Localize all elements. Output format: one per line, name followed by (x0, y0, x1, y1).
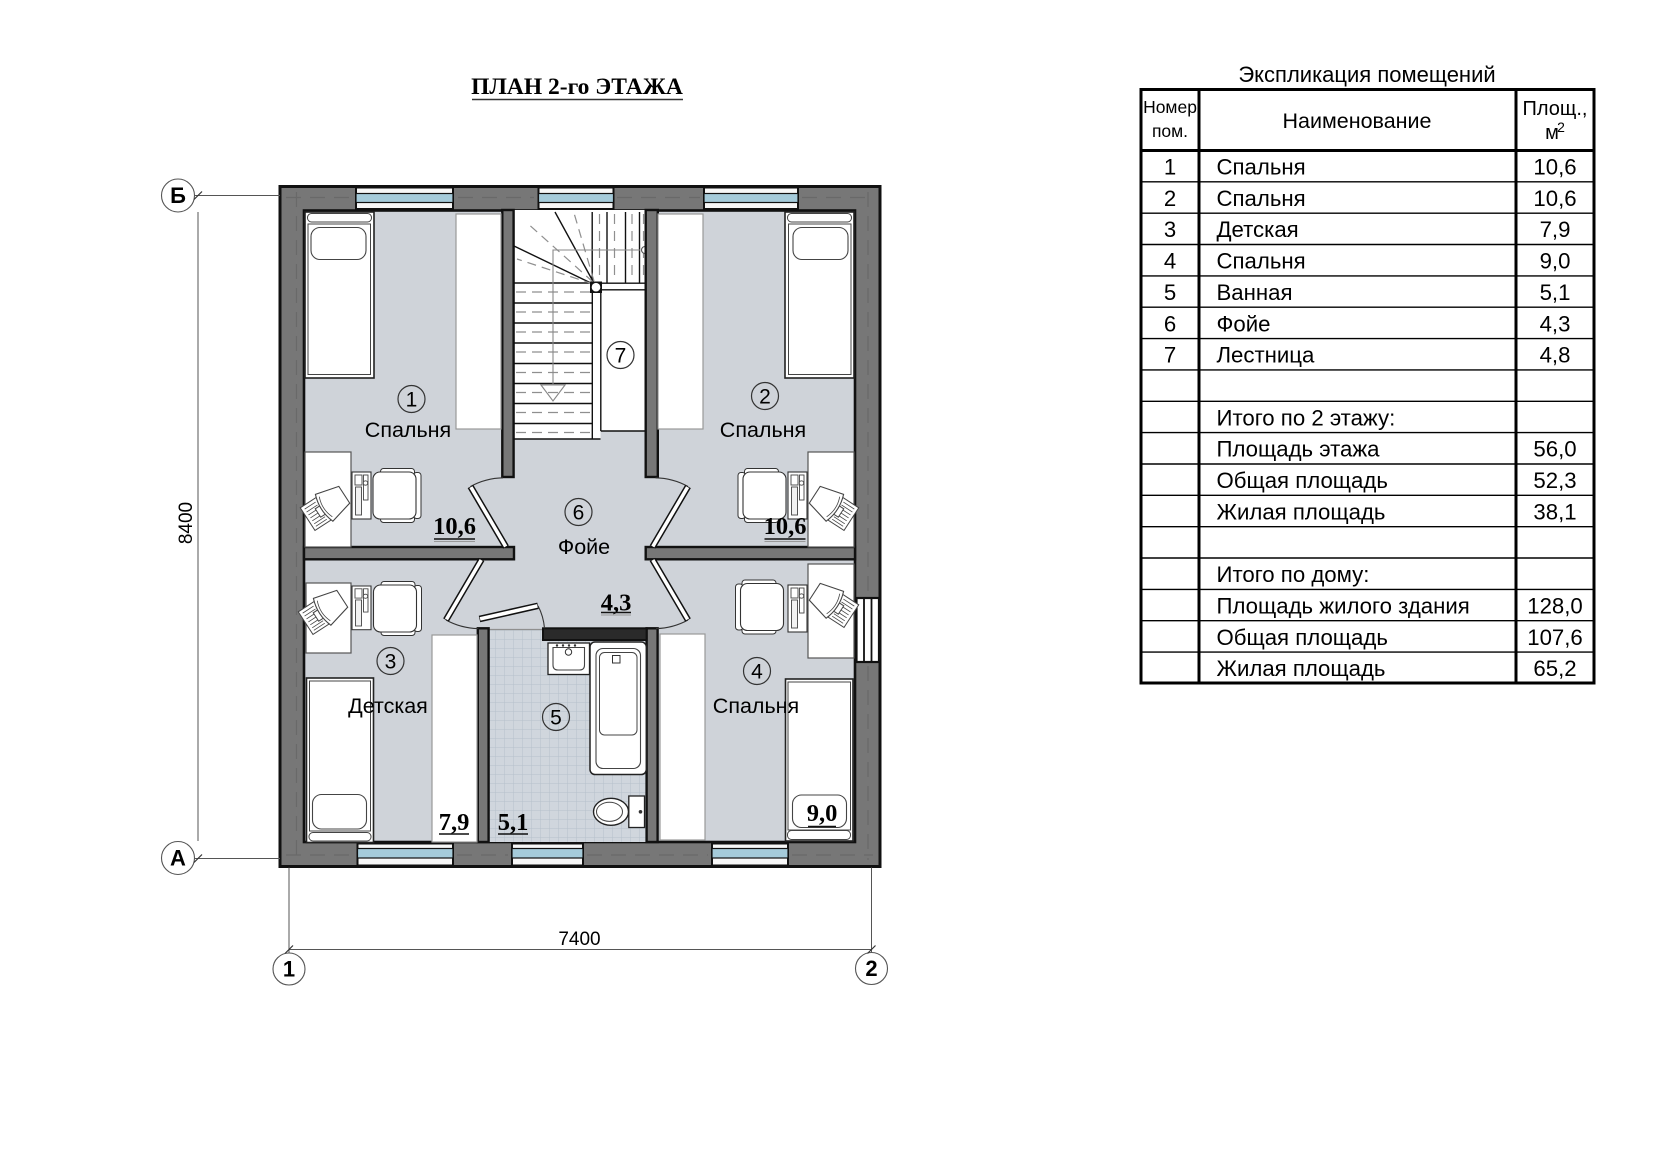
svg-text:Спальня: Спальня (1217, 186, 1306, 211)
svg-text:107,6: 107,6 (1527, 625, 1583, 650)
svg-text:4,3: 4,3 (1540, 311, 1571, 336)
svg-text:4: 4 (1164, 249, 1176, 274)
svg-text:Номер: Номер (1143, 97, 1197, 117)
svg-text:2: 2 (1164, 186, 1176, 211)
svg-text:4: 4 (751, 661, 763, 684)
svg-text:2: 2 (759, 386, 771, 409)
svg-text:Ванная: Ванная (1217, 280, 1293, 305)
svg-text:128,0: 128,0 (1527, 593, 1583, 618)
svg-text:10,6: 10,6 (1533, 186, 1576, 211)
svg-text:6: 6 (1164, 311, 1176, 336)
svg-text:Жилая площадь: Жилая площадь (1217, 656, 1386, 681)
svg-text:Детская: Детская (348, 694, 428, 718)
svg-text:3: 3 (385, 651, 397, 674)
svg-text:Итого по дому:: Итого по дому: (1217, 562, 1370, 587)
svg-text:5: 5 (550, 707, 562, 730)
svg-text:Спальня: Спальня (720, 418, 806, 442)
svg-text:4,8: 4,8 (1540, 343, 1571, 368)
svg-text:Спальня: Спальня (365, 418, 451, 442)
svg-text:9,0: 9,0 (807, 800, 838, 827)
svg-text:1: 1 (283, 957, 295, 982)
svg-text:65,2: 65,2 (1533, 656, 1576, 681)
svg-text:7: 7 (615, 345, 627, 368)
svg-text:10,6: 10,6 (764, 513, 807, 540)
svg-text:Экспликация помещений: Экспликация помещений (1238, 62, 1495, 87)
svg-text:7,9: 7,9 (1540, 217, 1571, 242)
svg-text:Лестница: Лестница (1217, 343, 1316, 368)
svg-text:1: 1 (406, 389, 418, 412)
svg-text:Спальня: Спальня (1217, 249, 1306, 274)
svg-text:5: 5 (1164, 280, 1176, 305)
svg-text:Жилая площадь: Жилая площадь (1217, 499, 1386, 524)
svg-text:Площадь этажа: Площадь этажа (1217, 437, 1381, 462)
svg-text:Спальня: Спальня (1217, 155, 1306, 180)
svg-text:ПЛАН 2-го ЭТАЖА: ПЛАН 2-го ЭТАЖА (471, 74, 683, 100)
svg-text:52,3: 52,3 (1533, 468, 1576, 493)
svg-text:Итого по 2 этажу:: Итого по 2 этажу: (1217, 405, 1396, 430)
svg-text:7,9: 7,9 (439, 809, 470, 836)
svg-text:Детская: Детская (1217, 217, 1299, 242)
svg-text:Общая площадь: Общая площадь (1217, 625, 1388, 650)
svg-text:8400: 8400 (176, 502, 197, 544)
svg-text:Фойе: Фойе (1217, 311, 1271, 336)
svg-text:Площадь жилого здания: Площадь жилого здания (1217, 593, 1470, 618)
svg-text:5,1: 5,1 (498, 809, 529, 836)
svg-text:9,0: 9,0 (1540, 249, 1571, 274)
svg-text:6: 6 (573, 502, 585, 525)
svg-text:2: 2 (865, 956, 877, 981)
svg-text:7: 7 (1164, 343, 1176, 368)
svg-text:Б: Б (170, 183, 186, 208)
svg-text:38,1: 38,1 (1533, 499, 1576, 524)
svg-text:А: А (170, 846, 186, 871)
svg-text:Площ.,: Площ., (1523, 98, 1588, 120)
svg-text:2: 2 (1557, 119, 1565, 135)
svg-text:Общая площадь: Общая площадь (1217, 468, 1388, 493)
svg-text:Фойе: Фойе (558, 535, 610, 559)
svg-text:Наименование: Наименование (1282, 109, 1431, 133)
svg-text:7400: 7400 (558, 929, 600, 950)
svg-text:10,6: 10,6 (1533, 155, 1576, 180)
svg-text:10,6: 10,6 (433, 513, 476, 540)
svg-text:56,0: 56,0 (1533, 437, 1576, 462)
svg-text:1: 1 (1164, 155, 1176, 180)
svg-text:5,1: 5,1 (1540, 280, 1571, 305)
svg-text:3: 3 (1164, 217, 1176, 242)
svg-text:пом.: пом. (1152, 121, 1188, 141)
svg-text:Спальня: Спальня (713, 694, 799, 718)
